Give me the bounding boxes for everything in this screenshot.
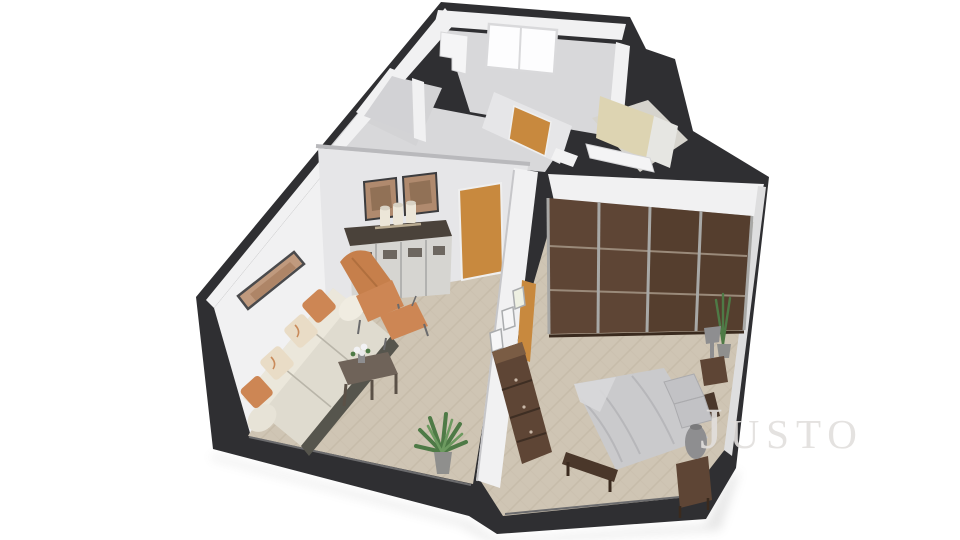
wardrobe	[548, 198, 752, 336]
plant-pot	[434, 452, 452, 474]
floor-plan-render: Justo	[0, 0, 960, 540]
living-room-door	[459, 183, 503, 280]
watermark-text: Justo	[700, 396, 864, 461]
floor-plan-svg: Justo	[0, 0, 960, 540]
closet-wall-right	[412, 78, 426, 142]
lamp-shade	[704, 326, 721, 344]
